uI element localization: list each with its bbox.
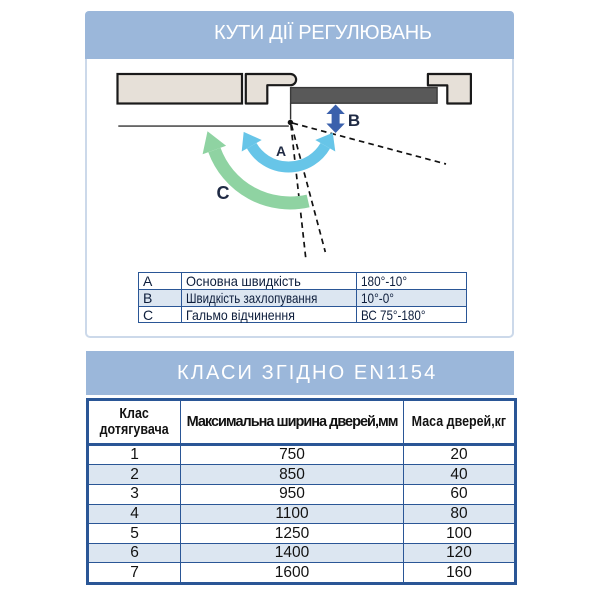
- svg-text:С: С: [217, 183, 230, 203]
- svg-text:А: А: [276, 143, 286, 159]
- svg-text:В: В: [348, 111, 360, 130]
